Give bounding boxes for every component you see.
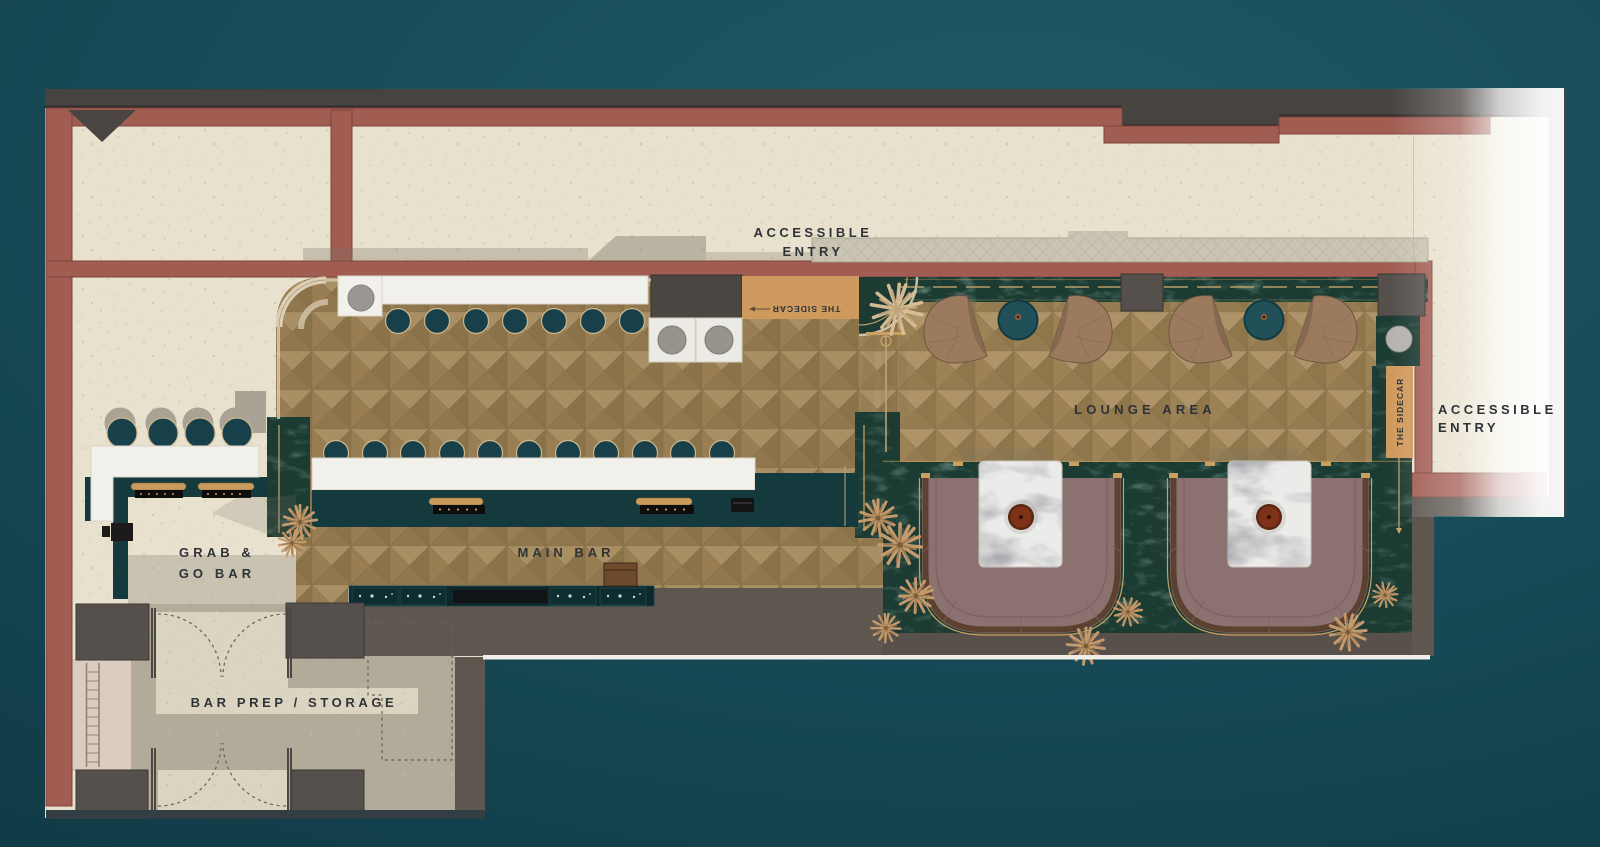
svg-text:THE SIDECAR: THE SIDECAR [1395,378,1405,447]
svg-text:BAR PREP / STORAGE: BAR PREP / STORAGE [191,695,398,710]
svg-text:GRAB &: GRAB & [179,545,255,560]
svg-text:ENTRY: ENTRY [1438,420,1499,435]
svg-text:MAIN BAR: MAIN BAR [518,545,615,560]
svg-text:ACCESSIBLE: ACCESSIBLE [754,225,873,240]
svg-text:GO BAR: GO BAR [179,566,256,581]
svg-text:LOUNGE AREA: LOUNGE AREA [1074,402,1216,417]
svg-text:ENTRY: ENTRY [782,244,843,259]
svg-text:ACCESSIBLE: ACCESSIBLE [1438,402,1557,417]
svg-text:THE SIDECAR: THE SIDECAR [772,304,841,314]
